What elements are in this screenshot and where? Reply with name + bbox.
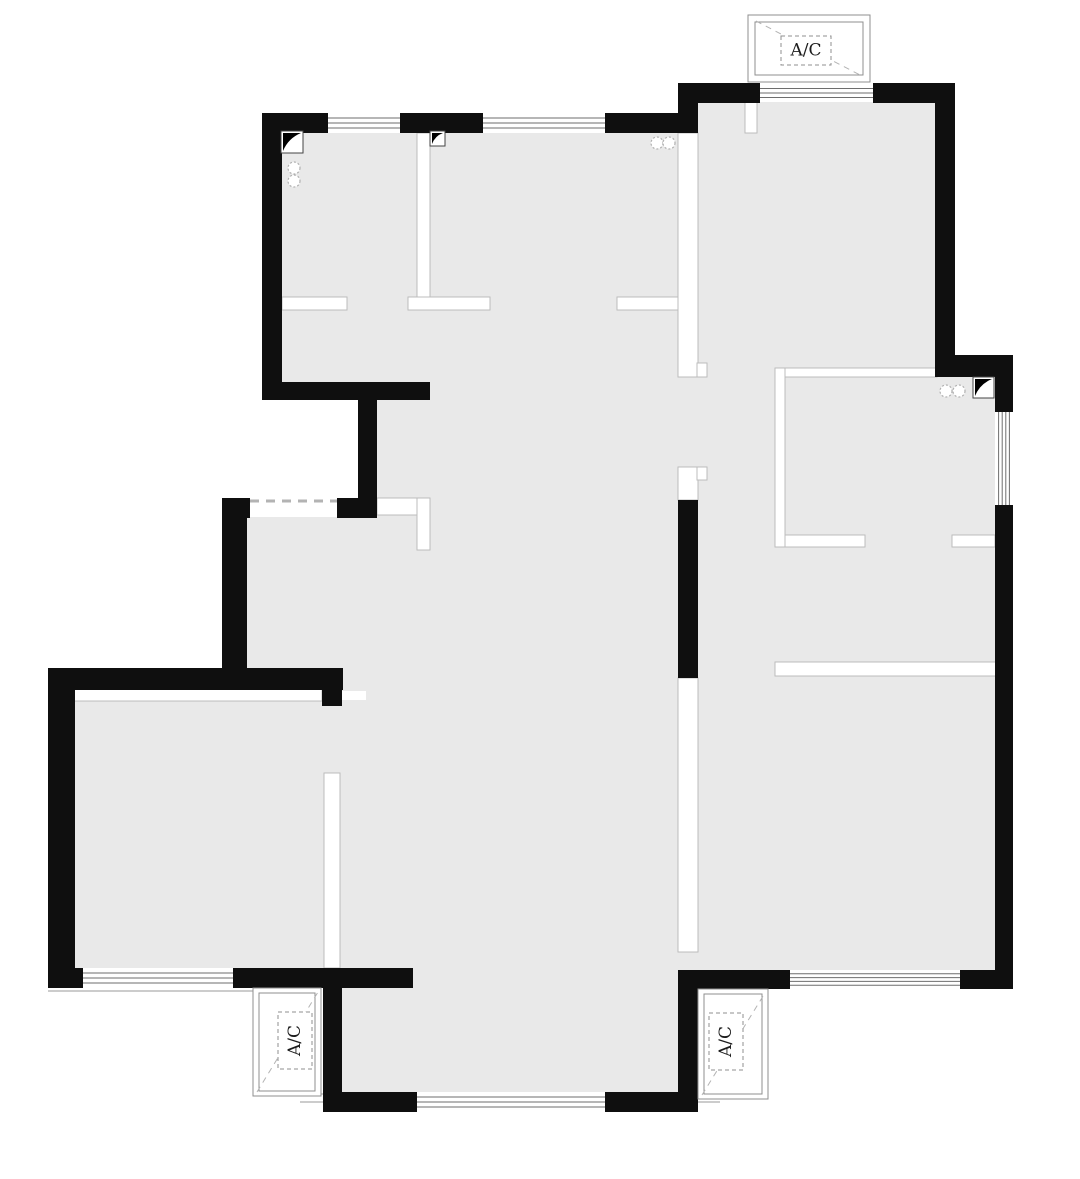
wall-segment	[48, 672, 75, 988]
ac-unit-label: A/C	[789, 41, 821, 61]
wall-segment	[337, 498, 377, 518]
wall-segment	[678, 100, 698, 133]
wall-segment	[995, 377, 1013, 412]
wall-segment	[233, 968, 413, 988]
partition-wall	[324, 773, 340, 968]
wall-segment	[282, 382, 430, 400]
wall-segment	[935, 95, 955, 377]
partition-wall	[678, 467, 698, 500]
partition-wall	[678, 133, 698, 377]
partition-wall	[775, 662, 998, 676]
wall-segment	[222, 498, 247, 690]
ac-unit-label: A/C	[285, 1025, 305, 1057]
wall-segment	[605, 1092, 698, 1112]
partition-wall	[408, 297, 490, 310]
partition-wall	[617, 297, 678, 310]
wall-segment	[698, 970, 790, 989]
floor-area	[232, 517, 432, 691]
wall-segment	[322, 668, 342, 706]
partition-wall	[785, 368, 937, 377]
wall-segment	[358, 400, 377, 500]
floor-plan: A/CA/CA/C	[0, 0, 1080, 1179]
floor-plan-canvas: A/CA/CA/C	[0, 0, 1080, 1179]
floor-area	[55, 676, 337, 982]
pipe-circle	[940, 385, 952, 397]
wall-segment	[960, 970, 1013, 989]
wall-segment	[678, 970, 698, 1112]
partition-wall	[282, 297, 347, 310]
wall-segment	[48, 668, 343, 690]
wall-segment	[262, 113, 328, 133]
window	[995, 412, 1013, 505]
pipe-circle	[288, 162, 300, 174]
floor-area	[366, 377, 690, 1098]
wall-segment	[678, 83, 760, 103]
wall-segment	[323, 970, 342, 1112]
pipe-circle	[663, 137, 675, 149]
pipe-circle	[288, 175, 300, 187]
partition-wall	[678, 678, 698, 952]
wall-segment	[262, 113, 282, 400]
partition-wall	[952, 535, 995, 547]
partition-wall	[785, 535, 865, 547]
partition-wall	[697, 363, 707, 377]
wall-segment	[678, 500, 698, 678]
wall-segment	[222, 498, 250, 518]
wall-segment	[400, 113, 483, 133]
pipe-circle	[651, 137, 663, 149]
floor-area	[276, 123, 690, 400]
pipe-circle	[953, 385, 965, 397]
wall-segment	[935, 355, 1013, 377]
partition-wall	[417, 498, 430, 550]
partition-wall	[417, 133, 430, 297]
floor-area	[337, 700, 372, 1095]
partition-wall	[697, 467, 707, 480]
wall-segment	[995, 505, 1013, 989]
window	[790, 970, 960, 989]
partition-wall	[745, 100, 757, 133]
ac-unit-label: A/C	[716, 1026, 736, 1058]
partition-wall	[775, 368, 785, 547]
